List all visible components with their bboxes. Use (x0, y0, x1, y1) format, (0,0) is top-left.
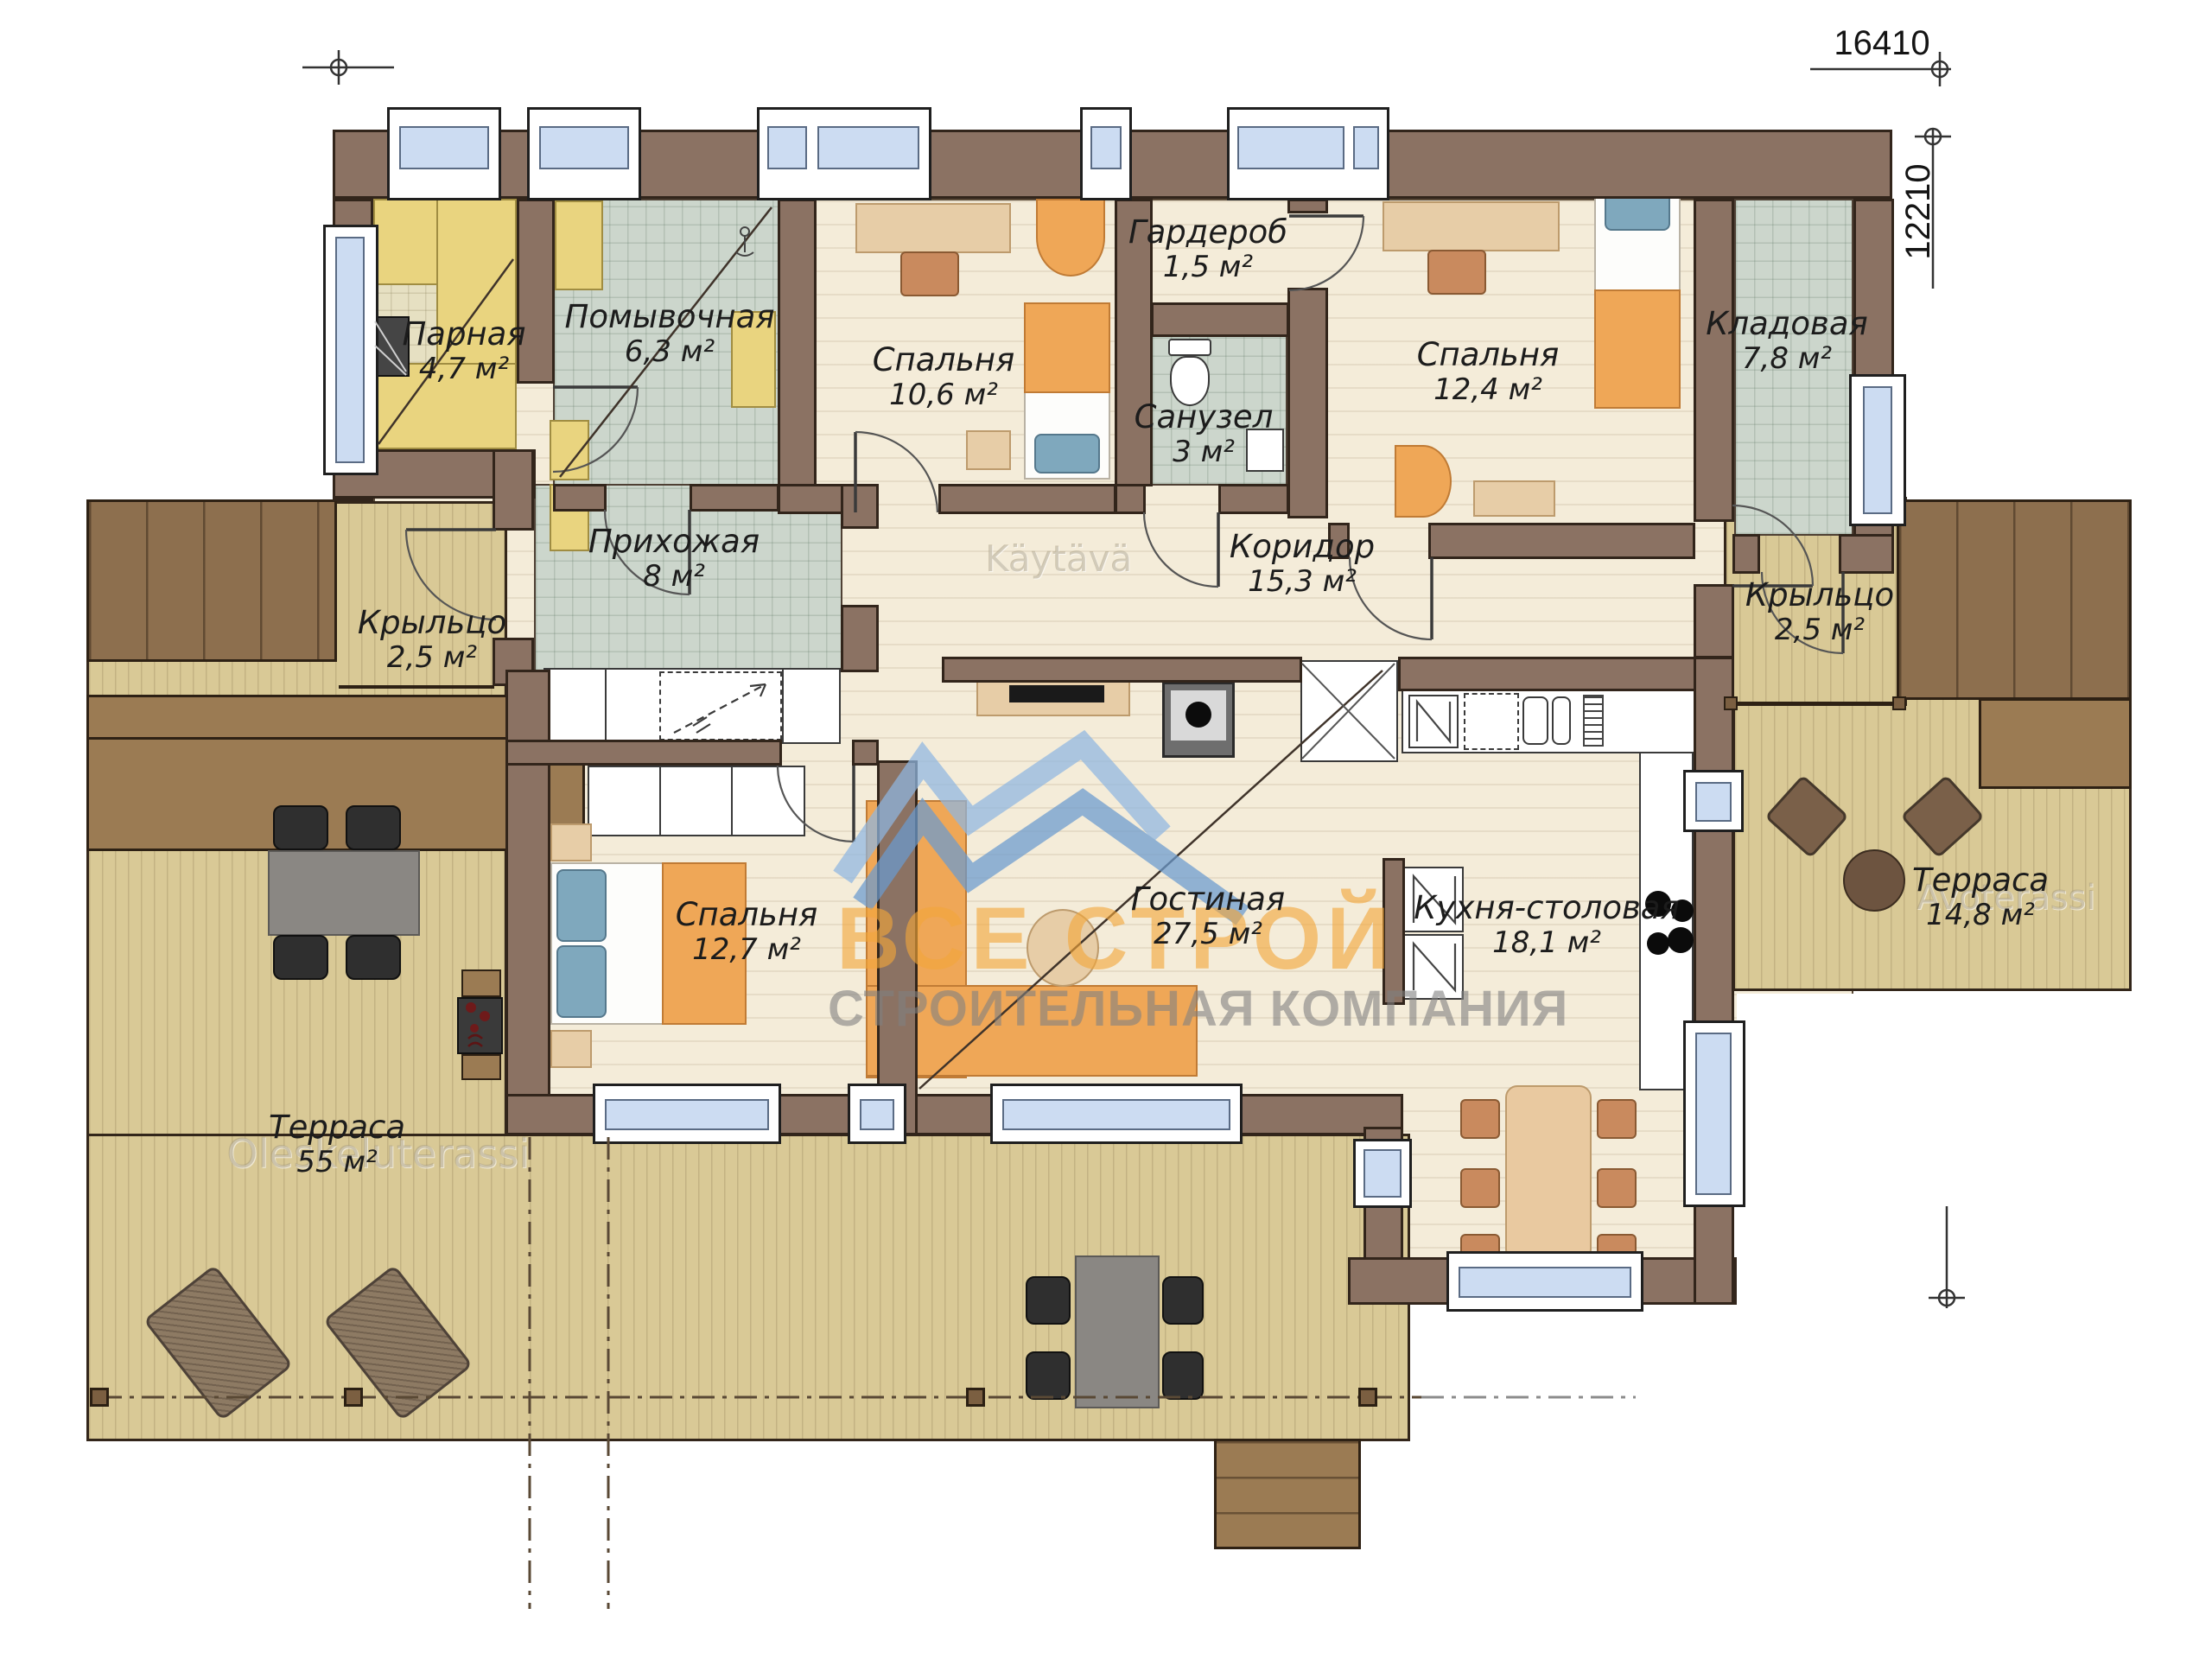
window-kitchen-south-glass (1459, 1267, 1631, 1298)
watermark-corridor: Käytävä (985, 537, 1132, 580)
window-bedroom1-glass-small (767, 126, 807, 169)
bedroom3-wardrobe-divider-2 (731, 767, 733, 835)
room-name: Крыльцо (358, 605, 506, 640)
terrace-chair-4 (346, 935, 401, 980)
wall-kladovaya-south-a (1732, 534, 1760, 574)
wall-corridor-kitchen (1398, 657, 1696, 691)
window-bedroom2-glass-large (1237, 126, 1344, 169)
room-name: Терраса (1912, 862, 2049, 898)
room-area: 12,4 м² (1417, 372, 1560, 407)
room-area: 55 м² (269, 1145, 405, 1179)
wall-kitchen-east (1694, 657, 1734, 1305)
room-name: Гостиная (1131, 881, 1285, 917)
deck-chair-4 (1162, 1351, 1204, 1400)
tv (1009, 685, 1104, 702)
bedroom3-wardrobe-divider-1 (659, 767, 661, 835)
deck-post-2 (344, 1388, 363, 1407)
kitchen-drying-rack (1583, 695, 1604, 747)
wall-sanuzel-south-b (1218, 484, 1289, 514)
hall-cabinet-1 (550, 420, 589, 480)
wall-kladovaya-south-b (1839, 534, 1894, 574)
deck-post-4 (1358, 1388, 1377, 1407)
room-area: 7,8 м² (1706, 341, 1868, 376)
room-name: Спальня (873, 342, 1015, 378)
dining-chair-5 (1597, 1168, 1637, 1208)
room-area: 10,6 м² (873, 378, 1015, 412)
label-kuhnya: Кухня-столовая 18,1 м² (1414, 890, 1679, 961)
window-washroom-glass (539, 126, 629, 169)
bedroom2-armchair (1395, 445, 1452, 518)
room-area: 14,8 м² (1912, 898, 2049, 932)
bedroom2-desk (1382, 201, 1560, 251)
dining-chair-2 (1460, 1168, 1500, 1208)
window-bedroom2-glass-small (1353, 126, 1379, 169)
bedroom3-pillow-1 (556, 869, 607, 942)
label-parnaya: Парная 4,7 м² (402, 316, 525, 387)
deck-chair-2 (1026, 1351, 1071, 1400)
terrace-chair-2 (346, 805, 401, 850)
grill-mat-bottom (461, 1054, 501, 1080)
kitchen-sink (1522, 696, 1548, 745)
wall-corridor-east-b (1694, 584, 1734, 658)
bedroom3-wardrobe (588, 766, 805, 836)
deck-post-1 (90, 1388, 109, 1407)
wall-bedroom3-north-a (505, 740, 782, 766)
wall-hall-east-b (841, 605, 879, 672)
dining-chair-4 (1597, 1099, 1637, 1139)
hall-closet-divider-2 (782, 670, 784, 742)
wall-hall-east-a (841, 484, 879, 529)
window-bedroom1-glass-large (817, 126, 919, 169)
toilet-tank (1168, 339, 1211, 356)
kitchen-sink-2 (1552, 696, 1571, 745)
dining-table (1505, 1085, 1592, 1262)
bedroom1-side-table (966, 430, 1011, 470)
bedroom1-bed-pillow (1034, 434, 1100, 474)
room-area: 12,7 м² (676, 932, 818, 967)
room-area: 8 м² (588, 559, 760, 594)
wall-wardrobe-east-a (1287, 199, 1328, 213)
room-name: Спальня (1417, 337, 1560, 372)
kitchen-dishwasher (1464, 693, 1519, 750)
bedroom3-nightstand-top (550, 823, 592, 861)
room-name: Коридор (1230, 529, 1375, 564)
bedroom2-bed-blanket (1594, 289, 1681, 409)
room-area: 15,3 м² (1230, 564, 1375, 599)
label-garderob: Гардероб 1,5 м² (1128, 214, 1287, 285)
wall-corridor-half (942, 657, 1302, 683)
label-koridor: Коридор 15,3 м² (1230, 529, 1375, 600)
window-living-large-glass (1002, 1099, 1230, 1130)
window-kitchen-west-glass (1363, 1149, 1402, 1198)
wall-wardrobe-east-b (1287, 288, 1328, 518)
bedroom2-side-table (1473, 480, 1555, 517)
wall-bedroom1-south-b (938, 484, 1116, 514)
deck-chair-3 (1162, 1276, 1204, 1325)
room-area: 1,5 м² (1128, 250, 1287, 284)
window-wardrobe-glass (1090, 126, 1122, 169)
wall-bedroom2-south-b (1428, 523, 1695, 559)
window-west-glass (335, 237, 365, 463)
wall-hall-west-a (493, 449, 534, 531)
dimension-width: 16410 (1813, 24, 1951, 63)
hall-shoe-cabinet (659, 671, 782, 741)
wall-washroom-south-b (690, 484, 779, 512)
floor-plan-canvas: Парная 4,7 м² Помывочная 6,3 м² Спальня … (0, 0, 2212, 1659)
room-name: Спальня (676, 897, 818, 932)
label-pomyvochnaya: Помывочная 6,3 м² (564, 299, 774, 370)
terrace-table (268, 850, 420, 936)
label-sanuzel: Санузел 3 м² (1135, 399, 1274, 470)
room-name: Терраса (269, 1109, 405, 1145)
bedroom3-pillow-2 (556, 945, 607, 1018)
terrace-chair-3 (273, 935, 328, 980)
bedroom1-chair (900, 251, 959, 296)
deck-table (1075, 1255, 1160, 1408)
dimension-height: 12210 (1899, 131, 1938, 292)
room-name: Помывочная (564, 299, 774, 334)
label-kladovaya: Кладовая 7,8 м² (1706, 306, 1868, 377)
bedroom3-nightstand-bottom (550, 1030, 592, 1068)
room-area: 6,3 м² (564, 334, 774, 369)
label-prihozhaya: Прихожая 8 м² (588, 524, 760, 594)
bedroom1-bed-blanket (1024, 302, 1110, 393)
steps-bottom (1214, 1439, 1361, 1549)
room-name: Кухня-столовая (1414, 890, 1679, 925)
terrace-right-table (1843, 849, 1905, 912)
attic-ladder (1300, 660, 1398, 762)
bedroom1-armchair (1036, 199, 1105, 276)
room-name: Прихожая (588, 524, 760, 559)
label-kryltso-right: Крыльцо 2,5 м² (1745, 577, 1894, 648)
porch-right-post-2 (1892, 696, 1906, 710)
logo-company-subtitle: СТРОИТЕЛЬНАЯ КОМПАНИЯ (828, 980, 1568, 1038)
terrace-chair-1 (273, 805, 328, 850)
room-area: 4,7 м² (402, 352, 525, 386)
label-spalnya-124: Спальня 12,4 м² (1417, 337, 1560, 408)
background-mask (1737, 994, 2212, 1265)
label-kryltso-left: Крыльцо 2,5 м² (358, 605, 506, 676)
window-kladovaya-glass (1863, 386, 1892, 514)
window-kitchen-east-large-glass (1695, 1033, 1732, 1195)
dining-chair-1 (1460, 1099, 1500, 1139)
room-name: Кладовая (1706, 306, 1868, 341)
room-area: 27,5 м² (1131, 917, 1285, 951)
room-name: Парная (402, 316, 525, 352)
logo-company-name: ВСЕ СТРОЙ (836, 888, 1395, 989)
wall-washroom-east (778, 199, 817, 501)
room-area: 3 м² (1135, 435, 1274, 469)
steps-top-left (86, 499, 337, 662)
deck-post-3 (966, 1388, 985, 1407)
label-terrasa-55: Терраса 55 м² (269, 1109, 405, 1180)
steps-right-band (1979, 698, 2132, 789)
kitchen-fridge (1408, 695, 1459, 748)
wall-sanuzel-south-a (1115, 484, 1146, 514)
grill-mat-top (461, 969, 501, 997)
fireplace-flue (1185, 702, 1211, 728)
room-area: 18,1 м² (1414, 925, 1679, 960)
wall-bedroom3-north-b (852, 740, 879, 766)
room-area: 2,5 м² (358, 640, 506, 675)
label-spalnya-106: Спальня 10,6 м² (873, 342, 1015, 413)
window-bedroom3-glass (605, 1099, 769, 1130)
window-sauna-glass (399, 126, 489, 169)
label-gostinaya: Гостиная 27,5 м² (1131, 881, 1285, 952)
hall-closet-divider-1 (605, 670, 607, 742)
bedroom2-chair (1427, 250, 1486, 295)
label-spalnya-127: Спальня 12,7 м² (676, 897, 818, 968)
wall-wardrobe-divider (1151, 302, 1289, 337)
label-terrasa-148: Терраса 14,8 м² (1912, 862, 2049, 933)
wall-washroom-south-a (553, 484, 607, 512)
room-name: Санузел (1135, 399, 1274, 435)
room-name: Крыльцо (1745, 577, 1894, 613)
room-name: Гардероб (1128, 214, 1287, 250)
window-living-small-glass (860, 1099, 894, 1130)
room-area: 2,5 м² (1745, 613, 1894, 647)
porch-right-post-1 (1724, 696, 1738, 710)
washroom-shelf-1 (555, 200, 603, 290)
bedroom1-desk (855, 203, 1011, 253)
steps-top-right (1897, 499, 2132, 700)
bbq-grill (457, 997, 503, 1054)
deck-chair-1 (1026, 1276, 1071, 1325)
window-kitchen-east-small-glass (1695, 782, 1732, 822)
